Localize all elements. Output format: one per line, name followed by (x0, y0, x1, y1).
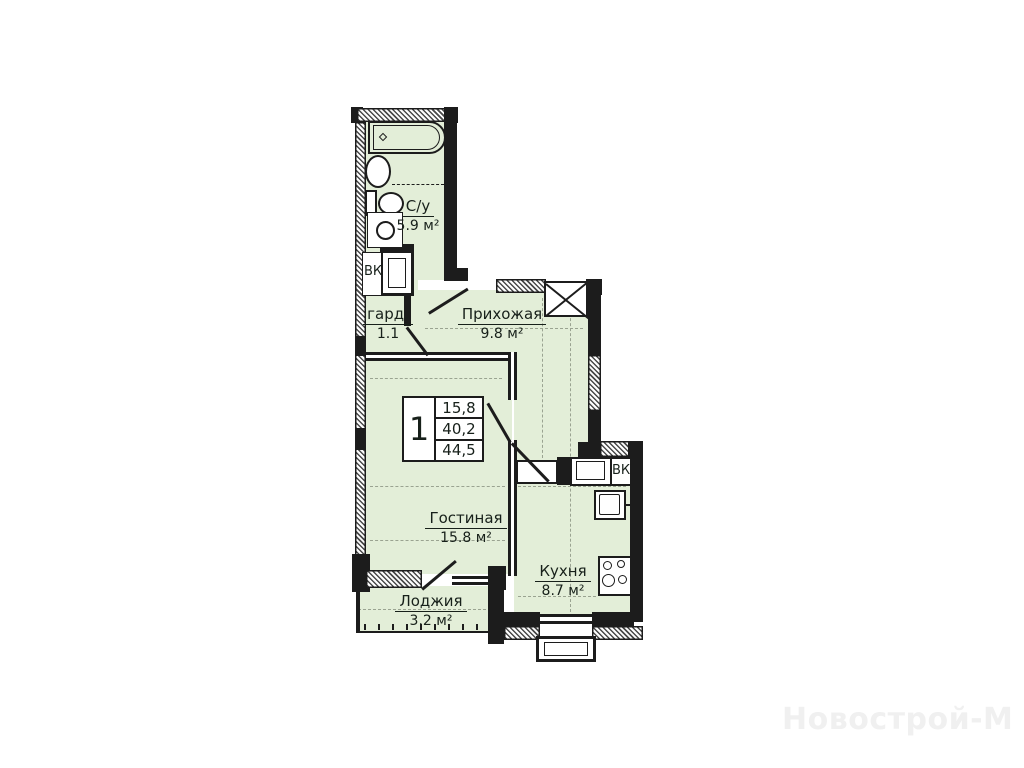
wall-kitchen-bottom (504, 612, 540, 626)
corridor-floor (514, 362, 588, 458)
wall-hallway-top (496, 279, 546, 293)
room-area: 3.2 м² (410, 612, 453, 629)
loggia-railing (356, 631, 488, 633)
floor-plan-canvas: ВК (0, 0, 1024, 768)
room-name: Лоджия (395, 593, 466, 612)
area-values: 15,8 40,2 44,5 (436, 398, 482, 460)
apartment-floor-plan: ВК (0, 0, 1024, 768)
washbasin-icon (365, 155, 391, 188)
room-area: 8.7 м² (542, 582, 585, 599)
room-area: 5.9 м² (397, 217, 440, 234)
room-area: 15.8 м² (440, 529, 492, 546)
kitchen-window (540, 614, 594, 624)
kitchen-appliance-inner (576, 461, 605, 480)
stove-burner (618, 575, 627, 584)
loggia-window (452, 576, 490, 585)
room-label-kitchen: Кухня 8.7 м² (532, 563, 594, 599)
room-label-loggia: Лоджия 3.2 м² (398, 593, 464, 629)
wall-kitchen-bottom (592, 612, 634, 626)
room-name: С/у (402, 198, 434, 217)
room-area: 9.8 м² (481, 325, 524, 342)
axis-line (370, 486, 505, 487)
loggia-left-edge (356, 590, 360, 632)
wall-kitchen-bottom-band (592, 626, 643, 640)
room-label-bathroom: С/у 5.9 м² (388, 198, 448, 234)
kitchen-counter-divider (557, 457, 571, 485)
duct-label-kitchen: ВК (612, 463, 630, 478)
railing-tick (392, 624, 394, 630)
wall-living-top (366, 352, 516, 361)
bathroom-zone-line (392, 184, 444, 185)
wall-bathroom-foot (444, 268, 468, 281)
room-name: Кухня (535, 563, 590, 582)
wall-kitchen-bottom-band (504, 626, 540, 640)
wall-living-right (508, 352, 517, 400)
bay-window-sill-inner (544, 642, 588, 656)
room-name: Гостиная (425, 510, 506, 529)
kitchen-sink-inner (599, 494, 620, 515)
room-label-wardrobe: гард. 1.1 (362, 306, 414, 342)
stove-burner (617, 560, 625, 568)
wall-right-outer (588, 355, 601, 411)
wall-corner (444, 107, 458, 123)
living-area-value: 15,8 (436, 398, 482, 419)
total-area-value: 44,5 (436, 441, 482, 460)
developer-watermark: Новострой-М (782, 702, 1022, 737)
room-area: 1.1 (377, 325, 399, 342)
duct-box-bathroom-inner (388, 258, 406, 288)
railing-tick (476, 624, 478, 630)
wall-right-outer (588, 293, 601, 355)
room-name: Прихожая (458, 306, 546, 325)
wall-bathroom-top (357, 108, 455, 122)
wall-kitchen-corner (578, 442, 602, 458)
wall-kitchen-left-ext (488, 588, 504, 644)
axis-line (518, 486, 626, 487)
kitchen-counter (516, 460, 558, 484)
stove-burner (603, 561, 612, 570)
duct-label-bathroom: ВК (364, 264, 382, 279)
room-label-living: Гостиная 15.8 м² (420, 510, 512, 546)
apartment-info-table: 1 15,8 40,2 44,5 (402, 396, 484, 462)
railing-tick (378, 624, 380, 630)
wall-loggia-sill (366, 570, 422, 588)
room-label-hallway: Прихожая 9.8 м² (450, 306, 554, 342)
wall-left-pier (355, 428, 366, 450)
area-value: 40,2 (436, 419, 482, 440)
wall-corner (488, 566, 506, 590)
stove-burner (602, 574, 615, 587)
axis-line (370, 378, 502, 379)
railing-tick (364, 624, 366, 630)
rooms-count: 1 (404, 398, 436, 460)
room-name: гард. (363, 306, 413, 325)
